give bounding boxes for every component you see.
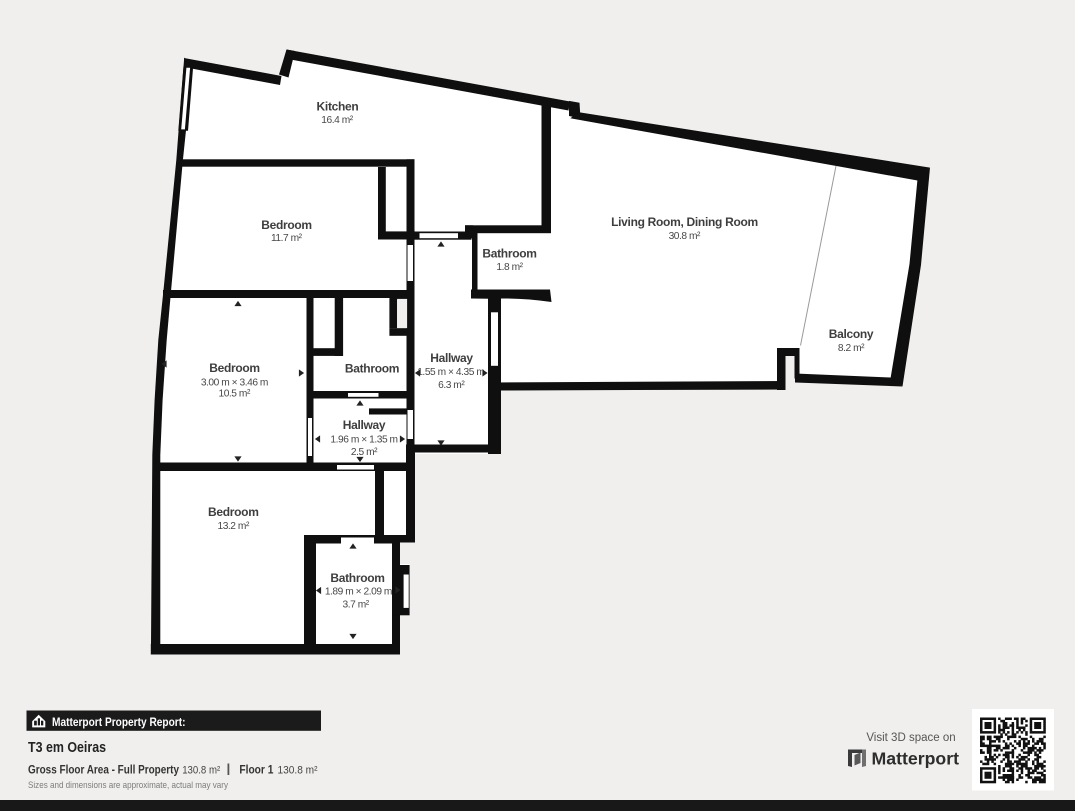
svg-text:Hallway: Hallway: [430, 351, 473, 365]
svg-text:1.8 m²: 1.8 m²: [496, 262, 523, 273]
svg-text:Floor 1: Floor 1: [239, 765, 274, 777]
svg-text:2.5 m²: 2.5 m²: [351, 447, 378, 458]
svg-text:T3 em Oeiras: T3 em Oeiras: [28, 740, 106, 756]
svg-text:Balcony: Balcony: [829, 327, 874, 341]
svg-text:Sizes and dimensions are appro: Sizes and dimensions are approximate, ac…: [28, 780, 228, 790]
svg-text:13.2 m²: 13.2 m²: [218, 521, 250, 532]
svg-text:130.8 m²: 130.8 m²: [182, 765, 220, 777]
svg-text:Gross Floor Area - Full Proper: Gross Floor Area - Full Property: [28, 765, 180, 777]
svg-text:16.4 m²: 16.4 m²: [321, 115, 353, 126]
svg-text:Matterport Property Report:: Matterport Property Report:: [52, 715, 186, 729]
svg-text:130.8 m²: 130.8 m²: [278, 765, 318, 777]
svg-text:Hallway: Hallway: [343, 418, 386, 432]
svg-text:Bathroom: Bathroom: [345, 362, 399, 376]
svg-text:Kitchen: Kitchen: [317, 100, 359, 114]
svg-text:Living Room, Dining Room: Living Room, Dining Room: [611, 215, 758, 229]
svg-text:1.89 m × 2.09 m: 1.89 m × 2.09 m: [325, 587, 392, 598]
svg-text:Bedroom: Bedroom: [261, 218, 312, 232]
svg-text:10.5 m²: 10.5 m²: [219, 388, 251, 399]
svg-text:6.3 m²: 6.3 m²: [438, 380, 465, 391]
svg-text:11.7 m²: 11.7 m²: [271, 233, 303, 244]
svg-text:1.96 m × 1.35 m: 1.96 m × 1.35 m: [330, 435, 397, 446]
svg-text:Bedroom: Bedroom: [208, 505, 259, 519]
svg-text:Bathroom: Bathroom: [482, 247, 536, 261]
svg-text:Matterport: Matterport: [872, 749, 960, 769]
svg-text:3.00 m × 3.46 m: 3.00 m × 3.46 m: [201, 378, 268, 389]
svg-text:8.2 m²: 8.2 m²: [838, 343, 865, 354]
svg-text:3.7 m²: 3.7 m²: [343, 600, 370, 611]
svg-text:1.55 m × 4.35 m: 1.55 m × 4.35 m: [417, 367, 484, 378]
svg-text:Visit 3D space on: Visit 3D space on: [866, 732, 955, 744]
svg-text:30.8 m²: 30.8 m²: [669, 231, 701, 242]
svg-text:Bathroom: Bathroom: [330, 571, 384, 585]
svg-text:Bedroom: Bedroom: [209, 361, 260, 375]
